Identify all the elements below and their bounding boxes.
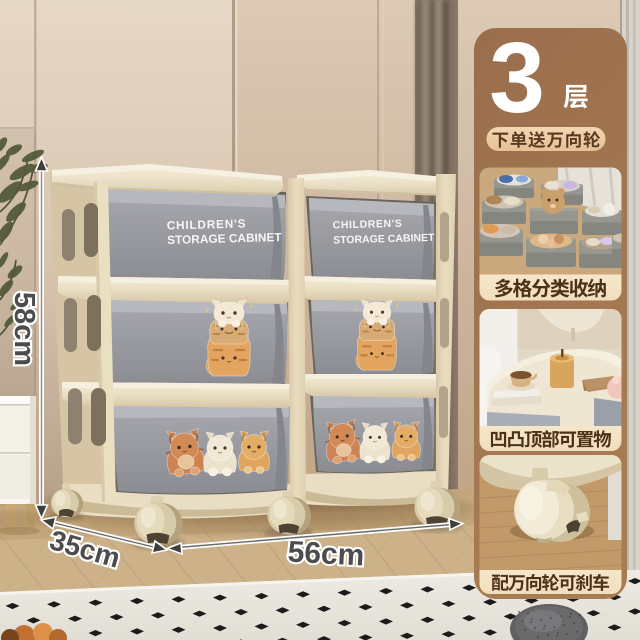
svg-text:58cm: 58cm xyxy=(8,292,40,366)
svg-text:CHILDREN'S: CHILDREN'S xyxy=(167,216,247,232)
svg-text:3: 3 xyxy=(489,22,545,134)
svg-text:56cm: 56cm xyxy=(287,536,365,573)
svg-text:CHILDREN'S: CHILDREN'S xyxy=(333,218,403,232)
